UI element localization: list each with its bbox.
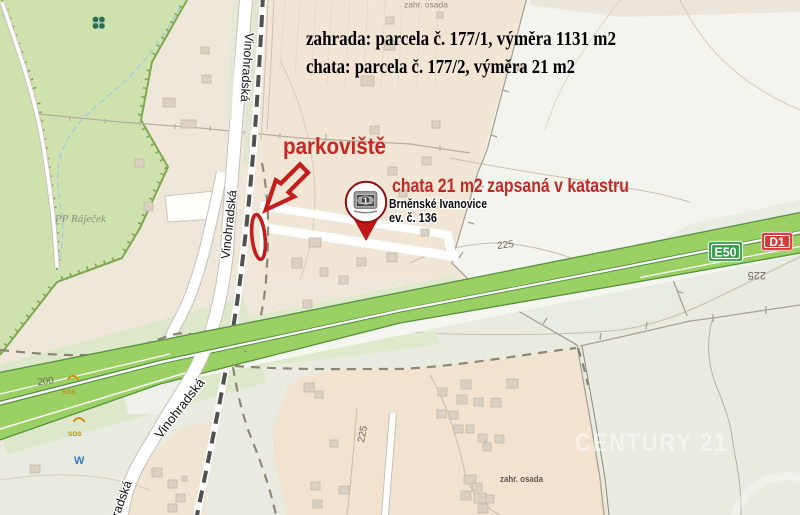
svg-text:chata: parcela č. 177/2, výměr: chata: parcela č. 177/2, výměra 21 m2 [306,56,575,78]
svg-text:1: 1 [363,196,368,206]
svg-text:zahr. osada: zahr. osada [500,474,544,485]
svg-text:225: 225 [497,239,515,252]
svg-text:SOS: SOS [62,389,76,396]
svg-text:SOS: SOS [68,431,82,438]
svg-text:E50: E50 [714,246,736,260]
svg-text:ev. č. 136: ev. č. 136 [389,210,437,225]
svg-text:Brněnské Ivanovice: Brněnské Ivanovice [389,196,487,211]
svg-text:225: 225 [748,269,766,281]
svg-text:chata 21 m2 zapsaná v katastru: chata 21 m2 zapsaná v katastru [392,175,629,197]
svg-text:D1: D1 [769,235,785,249]
svg-text:zahrada: parcela č. 177/1, vým: zahrada: parcela č. 177/1, výměra 1131 m… [306,28,616,50]
svg-text:zahr. osada: zahr. osada [404,0,448,10]
svg-text:W: W [74,455,85,467]
svg-text:CENTURY 21: CENTURY 21 [575,429,728,457]
svg-text:parkoviště: parkoviště [283,133,386,159]
svg-text:PP Ráječek: PP Ráječek [54,213,107,225]
